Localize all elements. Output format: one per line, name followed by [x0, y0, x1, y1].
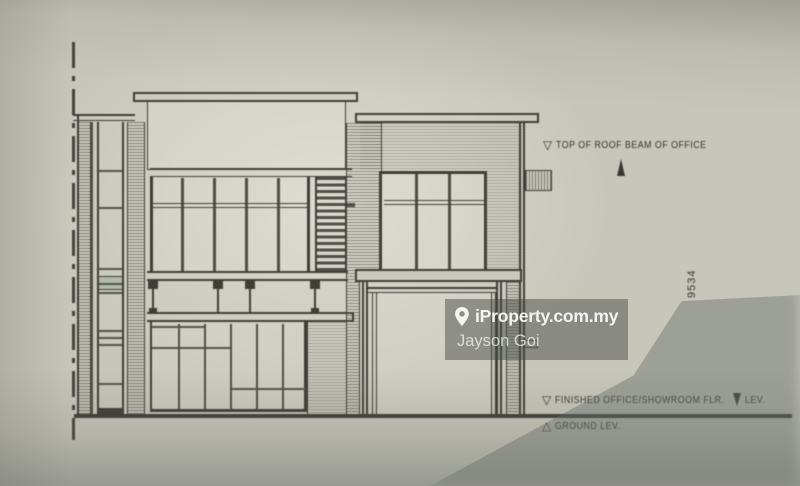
- strip-rung: [99, 268, 122, 270]
- showroom-top-slab: [147, 312, 354, 322]
- signboard-panel: [147, 101, 346, 170]
- strip-rung: [99, 344, 122, 346]
- bracket-post: [148, 281, 158, 314]
- ground-pier: [307, 322, 347, 415]
- window-transom: [384, 200, 484, 205]
- bracket-post: [310, 281, 320, 314]
- open-triangle-icon: ▽: [543, 139, 552, 151]
- curtain-mullion: [245, 178, 248, 272]
- vertical-dimension: 9534: [686, 250, 704, 298]
- entrance-side-wall: [346, 270, 360, 416]
- open-triangle-icon: ▽: [542, 394, 551, 406]
- showroom-transom: [152, 347, 232, 349]
- showroom-mullion: [204, 324, 206, 409]
- exterior-duct-box: [525, 170, 552, 191]
- strip-rung: [99, 170, 122, 172]
- showroom-transom: [231, 388, 306, 390]
- curtain-mullion: [213, 178, 216, 272]
- strip-rung: [99, 337, 122, 339]
- strip-rung: [99, 292, 122, 294]
- strip-rung: [99, 383, 122, 385]
- left-pier-a: [79, 122, 91, 416]
- left-parapet-band: [73, 114, 135, 121]
- floor-band: [147, 271, 348, 281]
- watermark-brand: iProperty.com.my: [475, 306, 618, 327]
- entrance-canopy: [355, 269, 522, 282]
- watermark: iProperty.com.my Jayson Goi: [445, 299, 628, 360]
- photo-of-elevation-drawing: ▽ TOP OF ROOF BEAM OF OFFICE 9534 ▽ FINI…: [0, 0, 800, 486]
- showroom-mullion: [282, 324, 284, 409]
- showroom-mullion: [178, 324, 180, 409]
- strip-rung: [99, 207, 122, 209]
- window-mullion: [448, 174, 451, 269]
- showroom-mullion: [256, 324, 258, 409]
- showroom-mullion: [230, 324, 232, 409]
- up-arrow-marker: [617, 159, 625, 176]
- window-mullion: [415, 174, 418, 269]
- wall-right-of-window: [487, 171, 522, 272]
- showroom-transom: [152, 326, 206, 328]
- left-recess-line: [91, 122, 93, 416]
- boundary-line: [72, 42, 75, 440]
- curtain-top-band: [150, 168, 352, 177]
- curtain-mullion: [181, 178, 184, 272]
- right-roof-band: [355, 113, 539, 123]
- roof-level-annotation: ▽ TOP OF ROOF BEAM OF OFFICE: [543, 139, 735, 151]
- strip-rung: [99, 330, 122, 332]
- left-pier-b: [127, 122, 145, 416]
- roof-level-label: TOP OF ROOF BEAM OF OFFICE: [556, 139, 706, 151]
- door-jamb-left: [362, 282, 368, 416]
- bracket-post: [245, 281, 255, 314]
- location-pin-icon: [455, 307, 469, 326]
- office-window: [379, 171, 487, 272]
- louver-panel: [315, 177, 346, 272]
- bracket-post: [213, 281, 223, 314]
- strip-rung: [99, 283, 122, 285]
- curtain-mullion: [277, 178, 280, 272]
- wall-above-window: [360, 123, 522, 171]
- watermark-agent: Jayson Goi: [457, 332, 540, 351]
- curtain-glazing: [150, 177, 310, 272]
- curtain-transom: [153, 203, 310, 208]
